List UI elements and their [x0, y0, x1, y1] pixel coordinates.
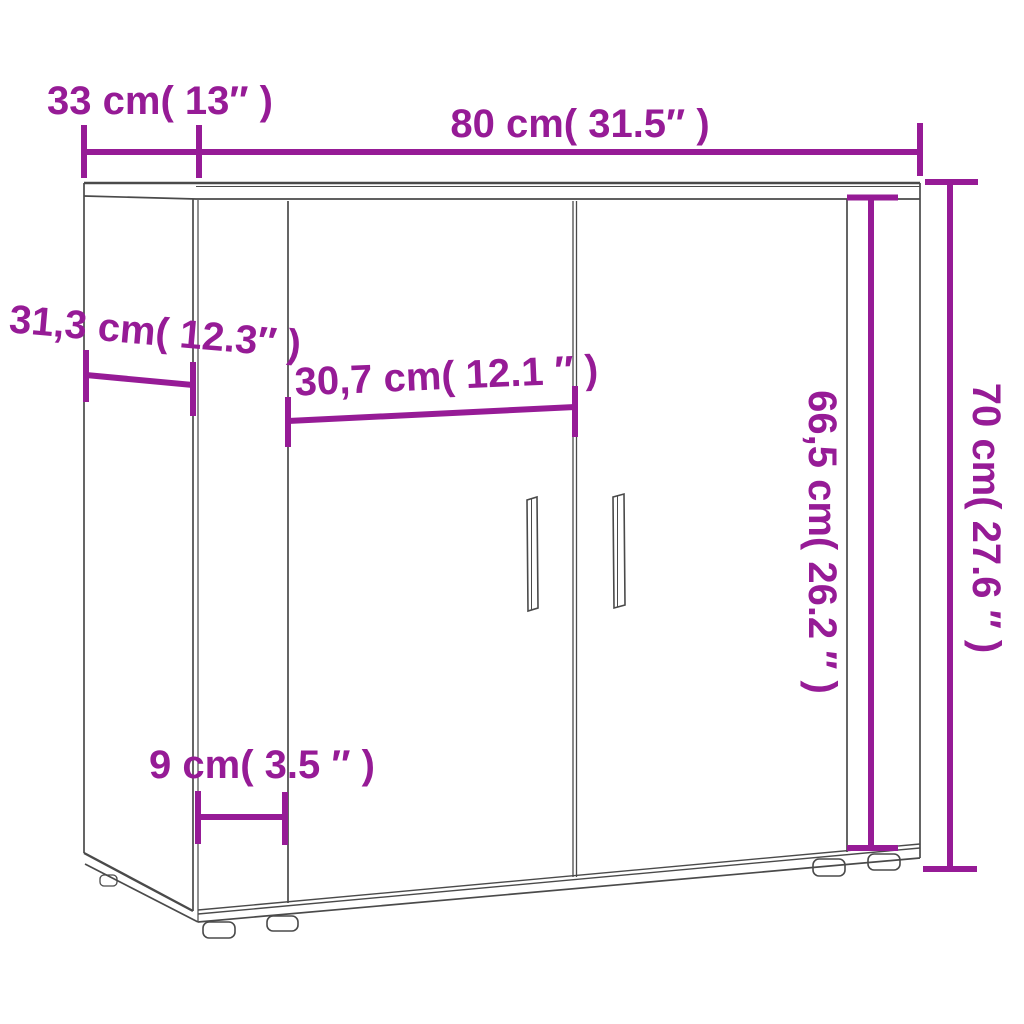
label-top-depth: 33 cm( 13″ ) — [47, 79, 273, 123]
plinth-side-edge — [85, 864, 198, 922]
label-door-width: 30,7 cm( 12.1 ″ ) — [294, 347, 599, 404]
label-left-panel-width: 9 cm( 3.5 ″ ) — [149, 743, 375, 787]
left-door-handle — [527, 497, 538, 611]
dimension-labels: 33 cm( 13″ ) 80 cm( 31.5″ ) 31,3 cm( 12.… — [7, 79, 1008, 787]
sideboard-diagram-svg: 33 cm( 13″ ) 80 cm( 31.5″ ) 31,3 cm( 12.… — [0, 0, 1024, 1024]
right-door-handle — [613, 494, 625, 608]
door-bottom-edge — [198, 844, 920, 910]
label-top-width: 80 cm( 31.5″ ) — [450, 102, 709, 146]
side-depth-dimension-line — [86, 375, 193, 385]
dimension-diagram: 33 cm( 13″ ) 80 cm( 31.5″ ) 31,3 cm( 12.… — [0, 0, 1024, 1024]
cabinet-drawing — [84, 183, 920, 938]
base-top-edge — [198, 848, 920, 914]
label-side-depth: 31,3 cm( 12.3″ ) — [7, 297, 302, 366]
door-width-dimension-line — [288, 407, 575, 421]
label-total-height: 70 cm( 27.6 ″ ) — [964, 383, 1008, 653]
front-foot-2 — [267, 916, 298, 931]
cabinet-top-front-edge — [84, 196, 920, 199]
label-door-height: 66,5 cm( 26.2 ″ ) — [800, 390, 844, 694]
front-foot-1 — [203, 922, 235, 938]
base-bottom-edge — [198, 858, 920, 922]
